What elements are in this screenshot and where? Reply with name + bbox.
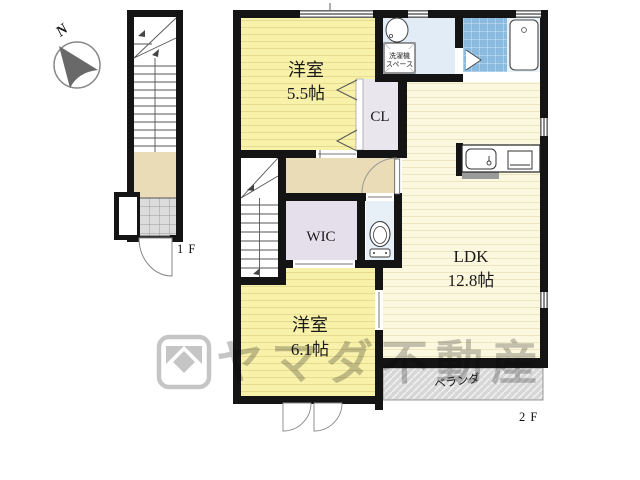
- floor-label-2f: 2 F: [519, 410, 538, 424]
- label-bedroom-55-name: 洋室: [288, 60, 324, 80]
- wic-door: [293, 260, 355, 268]
- toilet-icon: [370, 222, 390, 258]
- window-washroom-icon: [408, 10, 428, 18]
- label-bedroom-55-size: 5.5帖: [287, 84, 325, 103]
- label-ldk-name: LDK: [454, 247, 490, 266]
- floor-label-1f: 1 F: [177, 242, 196, 256]
- window-bedroom55-icon: [300, 3, 373, 18]
- floorplan-drawing: N 1 F: [0, 0, 640, 480]
- label-cl: CL: [370, 109, 389, 125]
- bathtub-icon: [510, 20, 538, 70]
- watermark-text: ヤマダ不動産: [216, 336, 546, 389]
- hallway: [286, 158, 398, 193]
- bedroom61-ldk-sliding-door: [375, 290, 383, 330]
- window-ldk-upper-icon: [540, 118, 548, 136]
- laundry-space: 洗濯機 スペース: [384, 43, 415, 73]
- entrance-door-arc: [139, 238, 172, 276]
- label-bedroom-61-name: 洋室: [292, 315, 328, 335]
- washbasin-icon: [386, 18, 408, 42]
- closet-door-track: [356, 79, 363, 150]
- entry-hall-1f: [134, 152, 176, 198]
- entrance-tile: [136, 198, 176, 236]
- label-ldk-size: 12.8帖: [448, 271, 495, 290]
- label-laundry-line1: 洗濯機: [389, 51, 410, 60]
- window-ldk-lower-icon: [540, 292, 548, 308]
- porch-alcove: [114, 192, 140, 240]
- watermark-logo-icon: [159, 337, 209, 387]
- north-label: N: [52, 20, 72, 41]
- label-laundry-line2: スペース: [386, 61, 413, 69]
- kitchen-sink-icon: [466, 149, 496, 169]
- compass-icon: N: [52, 20, 100, 88]
- bedroom61-door-left-arc: [283, 403, 311, 431]
- floorplan-page: N 1 F: [0, 0, 640, 480]
- watermark: ヤマダ不動産: [159, 336, 546, 389]
- kitchen-stove-icon: [508, 151, 532, 169]
- window-bath-icon: [516, 10, 541, 18]
- label-wic: WIC: [306, 229, 335, 245]
- bedroom61-door-right-arc: [314, 403, 342, 431]
- floor-plan-1f: 1 F: [114, 10, 196, 276]
- bedroom55-entry-door: [316, 150, 357, 158]
- toilet-door: [366, 193, 394, 201]
